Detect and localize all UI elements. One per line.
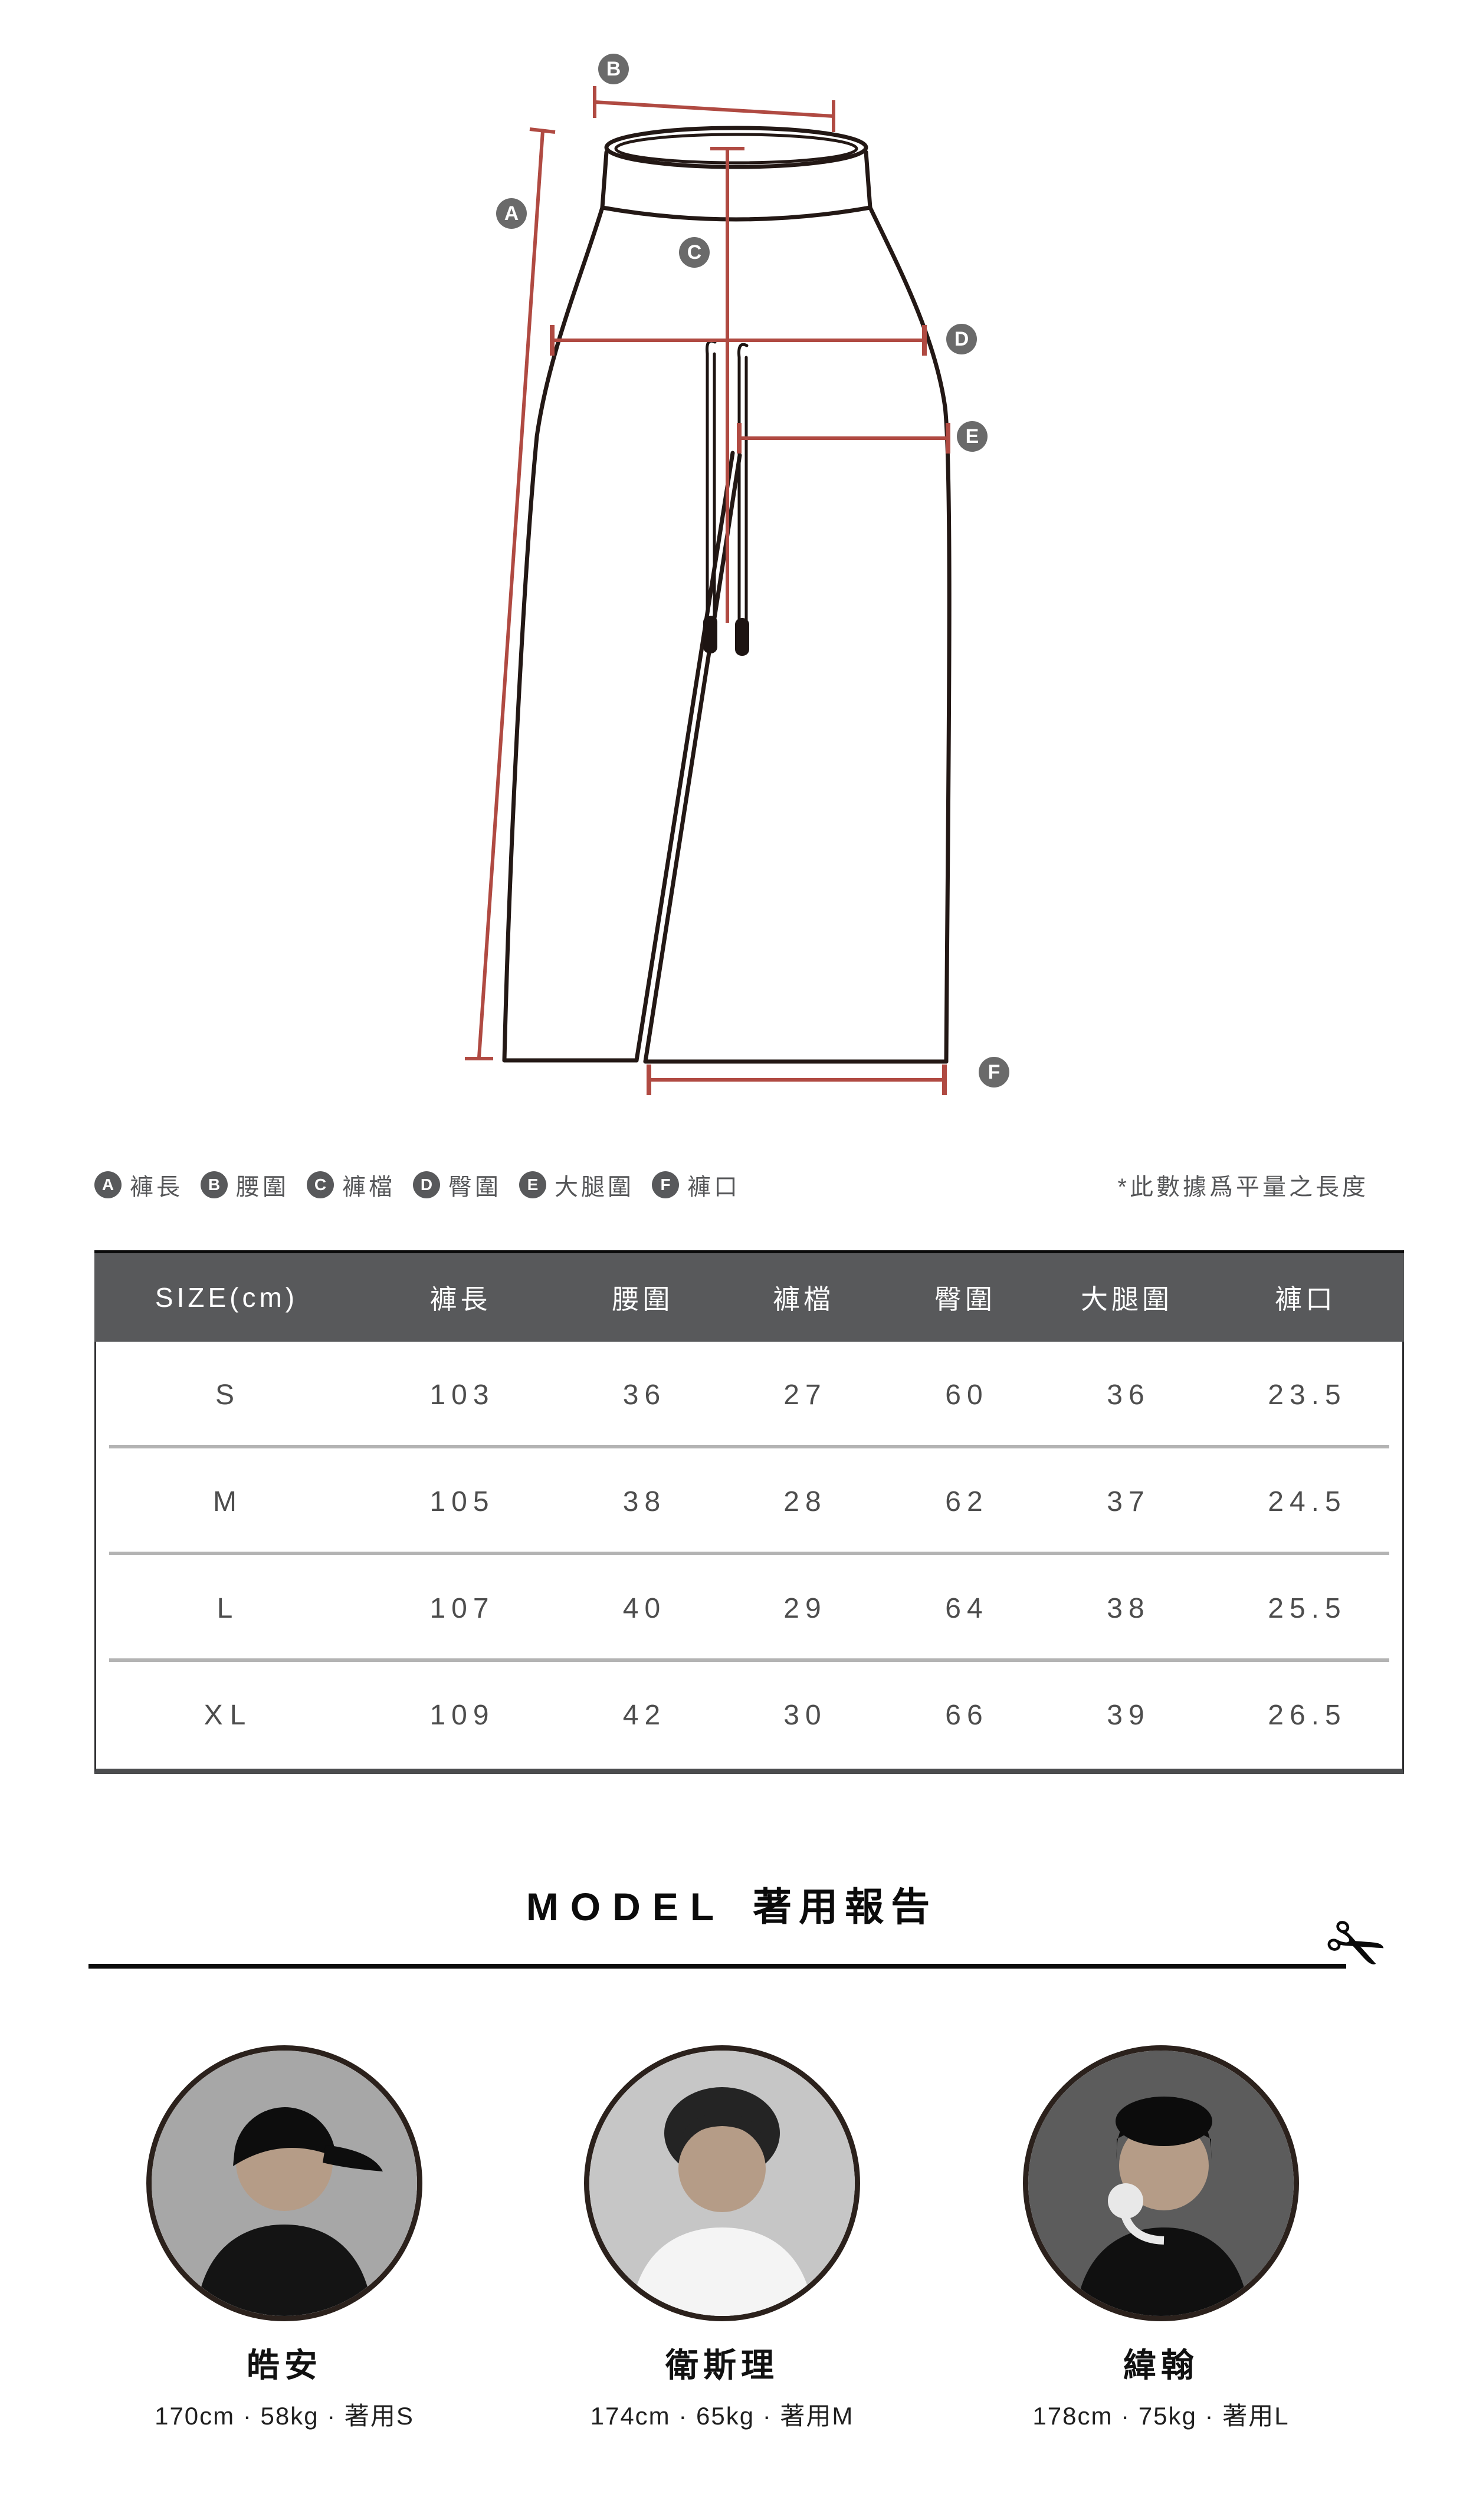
model-name: 皓安: [101, 2339, 467, 2387]
model-stats: 178cm · 75kg · 著用L: [978, 2396, 1344, 2432]
value-cell: 39: [1048, 1662, 1209, 1769]
diagram-label-f: F: [979, 1057, 1009, 1087]
col-header-waist: 腰圍: [562, 1253, 723, 1342]
model-card: 緯翰 178cm · 75kg · 著用L: [978, 2045, 1344, 2432]
col-header-hem: 褲口: [1207, 1253, 1404, 1342]
value-cell: 109: [360, 1662, 564, 1769]
diagram-label-e: E: [957, 421, 988, 452]
value-cell: 62: [885, 1448, 1048, 1555]
model-title-en: MODEL: [526, 1885, 726, 1928]
legend-letter-badge: D: [413, 1171, 440, 1198]
value-cell: 105: [360, 1448, 564, 1555]
model-section-title: MODEL著用報告: [0, 1875, 1463, 1932]
value-cell: 27: [725, 1342, 885, 1448]
legend-label: 褲檔: [342, 1168, 395, 1202]
size-table-body: S 103 36 27 60 36 23.5 M 105 38 28 62 37…: [94, 1342, 1404, 1774]
value-cell: 37: [1048, 1448, 1209, 1555]
value-cell: 25.5: [1209, 1555, 1406, 1662]
value-cell: 36: [1048, 1342, 1209, 1448]
table-row: XL 109 42 30 66 39 26.5: [96, 1662, 1402, 1769]
table-row: M 105 38 28 62 37 24.5: [96, 1448, 1402, 1555]
model-card: 衛斯理 174cm · 65kg · 著用M: [539, 2045, 905, 2432]
legend-item: D 臀圍: [413, 1168, 501, 1202]
model-name: 衛斯理: [539, 2339, 905, 2387]
size-chart-page: A B C D E F A 褲長 B 腰圍 C 褲檔 D 臀圍 E 大: [0, 0, 1463, 2520]
size-label: S: [96, 1342, 360, 1448]
value-cell: 42: [564, 1662, 725, 1769]
legend-letter-badge: C: [307, 1171, 334, 1198]
size-label: M: [96, 1448, 360, 1555]
model-photo: [1023, 2045, 1299, 2321]
col-header-length: 褲長: [359, 1253, 562, 1342]
model-title-zh: 著用報告: [753, 1885, 937, 1928]
divider-line: [88, 1964, 1346, 1969]
value-cell: 30: [725, 1662, 885, 1769]
col-header-size: SIZE(cm): [94, 1253, 359, 1342]
value-cell: 38: [564, 1448, 725, 1555]
value-cell: 66: [885, 1662, 1048, 1769]
col-header-hip: 臀圍: [884, 1253, 1047, 1342]
size-table-header: SIZE(cm) 褲長 腰圍 褲檔 臀圍 大腿圍 褲口: [94, 1253, 1404, 1342]
size-table: SIZE(cm) 褲長 腰圍 褲檔 臀圍 大腿圍 褲口 S 103 36 27 …: [94, 1250, 1404, 1774]
legend-label: 褲口: [687, 1168, 740, 1202]
value-cell: 60: [885, 1342, 1048, 1448]
col-header-thigh: 大腿圍: [1047, 1253, 1207, 1342]
model-name: 緯翰: [978, 2339, 1344, 2387]
legend-label: 腰圍: [236, 1168, 289, 1202]
legend-label: 褲長: [130, 1168, 183, 1202]
measurement-legend: A 褲長 B 腰圍 C 褲檔 D 臀圍 E 大腿圍 F 褲口: [94, 1169, 1369, 1201]
value-cell: 103: [360, 1342, 564, 1448]
value-cell: 26.5: [1209, 1662, 1406, 1769]
model-photo: [584, 2045, 860, 2321]
value-cell: 64: [885, 1555, 1048, 1662]
model-stats: 174cm · 65kg · 著用M: [539, 2396, 905, 2432]
table-row: S 103 36 27 60 36 23.5: [96, 1342, 1402, 1448]
model-stats: 170cm · 58kg · 著用S: [101, 2396, 467, 2432]
legend-item: C 褲檔: [307, 1168, 395, 1202]
col-header-rise: 褲檔: [723, 1253, 884, 1342]
legend-letter-badge: B: [201, 1171, 228, 1198]
value-cell: 36: [564, 1342, 725, 1448]
legend-letter-badge: F: [652, 1171, 679, 1198]
value-cell: 40: [564, 1555, 725, 1662]
size-label: L: [96, 1555, 360, 1662]
diagram-label-b: B: [598, 54, 629, 84]
legend-item: A 褲長: [94, 1168, 183, 1202]
value-cell: 29: [725, 1555, 885, 1662]
model-card: 皓安 170cm · 58kg · 著用S: [101, 2045, 467, 2432]
legend-item: F 褲口: [652, 1168, 740, 1202]
legend-item: B 腰圍: [201, 1168, 289, 1202]
value-cell: 23.5: [1209, 1342, 1406, 1448]
diagram-label-a: A: [496, 198, 527, 229]
table-row: L 107 40 29 64 38 25.5: [96, 1555, 1402, 1662]
value-cell: 24.5: [1209, 1448, 1406, 1555]
value-cell: 107: [360, 1555, 564, 1662]
size-label: XL: [96, 1662, 360, 1769]
flat-measure-note: *此數據爲平量之長度: [1117, 1168, 1369, 1202]
pants-diagram: [0, 0, 1463, 1121]
legend-label: 大腿圍: [555, 1168, 634, 1202]
value-cell: 28: [725, 1448, 885, 1555]
legend-label: 臀圍: [448, 1168, 501, 1202]
legend-item: E 大腿圍: [519, 1168, 634, 1202]
value-cell: 38: [1048, 1555, 1209, 1662]
model-photo: [146, 2045, 422, 2321]
legend-items: A 褲長 B 腰圍 C 褲檔 D 臀圍 E 大腿圍 F 褲口: [94, 1168, 740, 1202]
legend-letter-badge: E: [519, 1171, 546, 1198]
diagram-label-c: C: [679, 237, 710, 268]
legend-letter-badge: A: [94, 1171, 122, 1198]
diagram-label-d: D: [946, 324, 977, 354]
